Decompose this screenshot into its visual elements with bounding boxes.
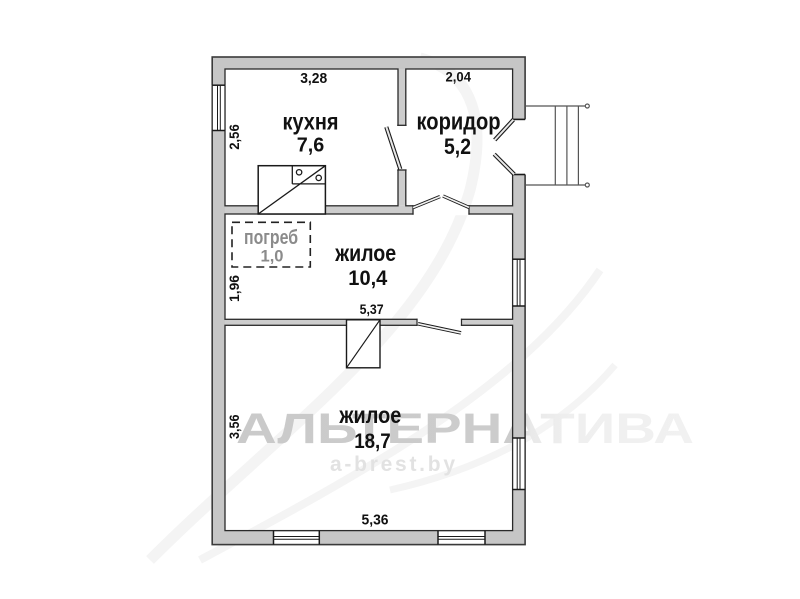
svg-text:кухня: кухня	[283, 108, 339, 134]
svg-text:3,56: 3,56	[226, 414, 242, 439]
svg-text:2,04: 2,04	[446, 68, 472, 84]
svg-text:3,28: 3,28	[300, 70, 327, 87]
svg-text:1,96: 1,96	[226, 275, 242, 302]
svg-text:5,2: 5,2	[444, 134, 471, 159]
svg-text:жилое: жилое	[339, 402, 402, 428]
svg-text:10,4: 10,4	[348, 266, 387, 290]
svg-text:коридор: коридор	[417, 108, 501, 135]
svg-text:5,37: 5,37	[360, 302, 384, 317]
svg-text:АЛЬТЕРНАТИВА: АЛЬТЕРНАТИВА	[236, 405, 694, 453]
svg-text:1,0: 1,0	[261, 247, 284, 266]
svg-text:18,7: 18,7	[354, 429, 391, 453]
svg-text:5,36: 5,36	[362, 513, 389, 529]
svg-text:2,56: 2,56	[226, 124, 242, 150]
svg-text:7,6: 7,6	[297, 134, 325, 157]
svg-text:жилое: жилое	[334, 240, 396, 266]
